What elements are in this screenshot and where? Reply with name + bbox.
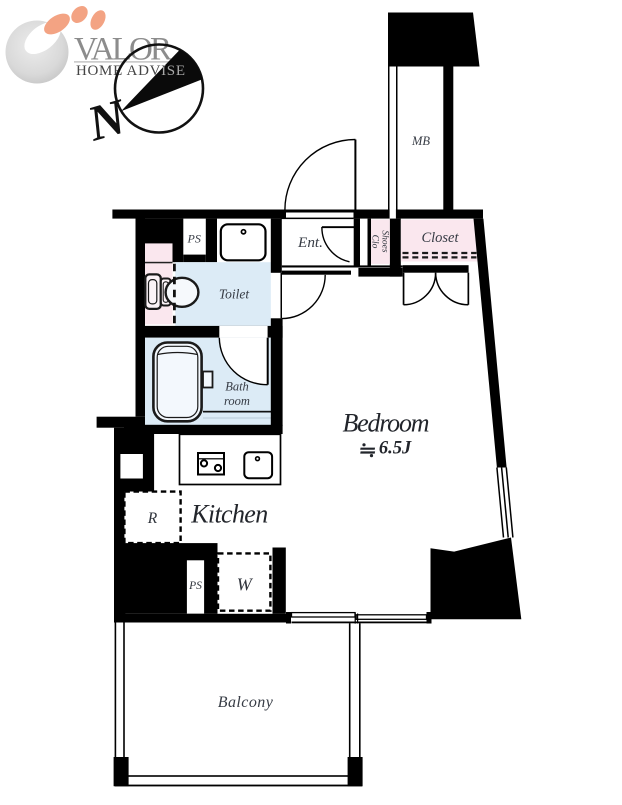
svg-text:Bath: Bath [225, 380, 249, 394]
svg-text:MB: MB [411, 134, 430, 148]
svg-text:Toilet: Toilet [219, 287, 251, 302]
svg-text:6.5J: 6.5J [379, 439, 412, 459]
svg-text:PS: PS [187, 232, 201, 246]
svg-text:Balcony: Balcony [218, 694, 274, 711]
svg-text:Kitchen: Kitchen [190, 500, 268, 529]
svg-text:R: R [147, 510, 158, 527]
svg-text:room: room [224, 394, 250, 408]
svg-text:Closet: Closet [421, 230, 459, 246]
svg-text:PS: PS [188, 580, 202, 592]
svg-text:Ent.: Ent. [297, 234, 323, 251]
svg-text:Bedroom: Bedroom [343, 409, 430, 438]
svg-text:W: W [237, 575, 254, 595]
